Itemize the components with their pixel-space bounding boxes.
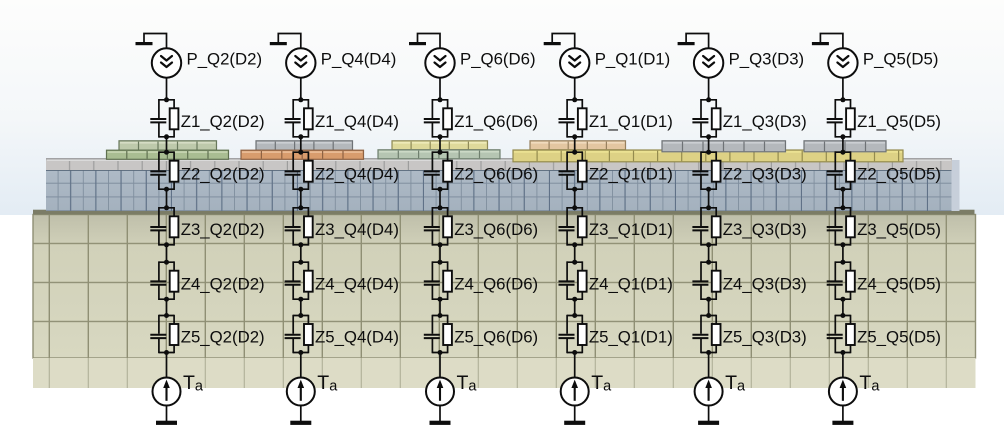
svg-text:Z1_Q4(D4): Z1_Q4(D4)	[315, 112, 399, 131]
svg-text:Z3_Q6(D6): Z3_Q6(D6)	[454, 220, 538, 239]
svg-text:Z2_Q1(D1): Z2_Q1(D1)	[589, 164, 673, 183]
svg-text:Z5_Q6(D6): Z5_Q6(D6)	[454, 328, 538, 347]
svg-text:Z4_Q5(D5): Z4_Q5(D5)	[857, 274, 941, 293]
svg-text:Z4_Q1(D1): Z4_Q1(D1)	[589, 274, 673, 293]
svg-text:P_Q6(D6): P_Q6(D6)	[460, 50, 536, 69]
svg-text:Z3_Q4(D4): Z3_Q4(D4)	[315, 220, 399, 239]
svg-text:Z4_Q4(D4): Z4_Q4(D4)	[315, 274, 399, 293]
svg-text:Z5_Q1(D1): Z5_Q1(D1)	[589, 328, 673, 347]
svg-text:Z2_Q4(D4): Z2_Q4(D4)	[315, 164, 399, 183]
svg-text:Z1_Q6(D6): Z1_Q6(D6)	[454, 112, 538, 131]
svg-text:P_Q1(D1): P_Q1(D1)	[595, 50, 671, 69]
svg-text:Z5_Q2(D2): Z5_Q2(D2)	[181, 328, 265, 347]
svg-text:Z1_Q2(D2): Z1_Q2(D2)	[181, 112, 265, 131]
svg-text:Z4_Q6(D6): Z4_Q6(D6)	[454, 274, 538, 293]
svg-text:P_Q3(D3): P_Q3(D3)	[729, 50, 805, 69]
svg-text:Z1_Q3(D3): Z1_Q3(D3)	[723, 112, 807, 131]
svg-text:Z2_Q6(D6): Z2_Q6(D6)	[454, 164, 538, 183]
svg-text:Z3_Q1(D1): Z3_Q1(D1)	[589, 220, 673, 239]
svg-text:Z5_Q3(D3): Z5_Q3(D3)	[723, 328, 807, 347]
svg-text:Z3_Q2(D2): Z3_Q2(D2)	[181, 220, 265, 239]
svg-text:Z2_Q2(D2): Z2_Q2(D2)	[181, 164, 265, 183]
svg-text:Z4_Q3(D3): Z4_Q3(D3)	[723, 274, 807, 293]
svg-text:Z3_Q3(D3): Z3_Q3(D3)	[723, 220, 807, 239]
svg-text:Z5_Q4(D4): Z5_Q4(D4)	[315, 328, 399, 347]
svg-text:Z4_Q2(D2): Z4_Q2(D2)	[181, 274, 265, 293]
svg-text:Z1_Q5(D5): Z1_Q5(D5)	[857, 112, 941, 131]
svg-text:Z2_Q5(D5): Z2_Q5(D5)	[857, 164, 941, 183]
svg-text:Z5_Q5(D5): Z5_Q5(D5)	[857, 328, 941, 347]
svg-text:Z2_Q3(D3): Z2_Q3(D3)	[723, 164, 807, 183]
svg-text:P_Q2(D2): P_Q2(D2)	[187, 50, 263, 69]
svg-text:P_Q5(D5): P_Q5(D5)	[863, 50, 939, 69]
svg-text:Z1_Q1(D1): Z1_Q1(D1)	[589, 112, 673, 131]
svg-text:P_Q4(D4): P_Q4(D4)	[321, 50, 397, 69]
svg-text:Z3_Q5(D5): Z3_Q5(D5)	[857, 220, 941, 239]
